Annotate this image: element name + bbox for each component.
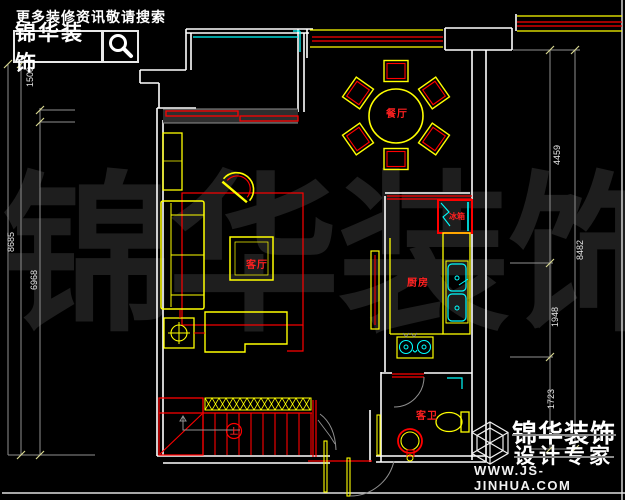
- room-label-kitchen: 厨房: [403, 274, 433, 289]
- brand-logo: 锦华装饰: [13, 30, 103, 63]
- armchair: [222, 166, 261, 203]
- stair-treads: [203, 413, 311, 455]
- window-cyan: [193, 31, 462, 389]
- stove: [397, 333, 433, 358]
- bath-door-leaf: [377, 415, 380, 455]
- dim-left-8685: 8685: [6, 222, 18, 262]
- dim-right-4459: 4459: [552, 135, 564, 175]
- cad-floorplan-screenshot: 锦 华 装 饰: [0, 0, 625, 500]
- search-icon: [106, 32, 136, 62]
- kitchen-door-leaf: [371, 251, 379, 329]
- dimension-ticks: [4, 46, 579, 459]
- dim-right-1723: 1723: [546, 379, 558, 419]
- room-label-living: 客厅: [242, 256, 272, 271]
- search-box: [102, 30, 139, 63]
- balcony-sliding-door: [163, 109, 298, 123]
- floor-lamp: [164, 318, 194, 348]
- dim-right-8482: 8482: [575, 230, 587, 270]
- footer-website: WWW.JS-JINHUA.COM: [474, 463, 625, 493]
- dim-left-6968: 6968: [29, 260, 41, 300]
- staircase: [159, 398, 336, 457]
- room-label-fridge: 冰箱: [444, 211, 470, 222]
- living-room-furniture: [161, 133, 303, 352]
- tv-cabinet: [205, 312, 287, 352]
- walls: [140, 14, 516, 463]
- entry-cabinet: [163, 133, 182, 190]
- cube-logo: [472, 422, 508, 464]
- stair-up-label: 上: [227, 426, 241, 437]
- room-label-dining: 餐厅: [382, 105, 412, 120]
- bath-door-arc: [394, 377, 424, 407]
- dim-right-1948: 1948: [550, 297, 562, 337]
- room-label-guest-bath: 客卫: [413, 407, 441, 422]
- window-top: [310, 16, 622, 47]
- sink: [446, 261, 468, 323]
- entry-door-arc: [350, 461, 394, 496]
